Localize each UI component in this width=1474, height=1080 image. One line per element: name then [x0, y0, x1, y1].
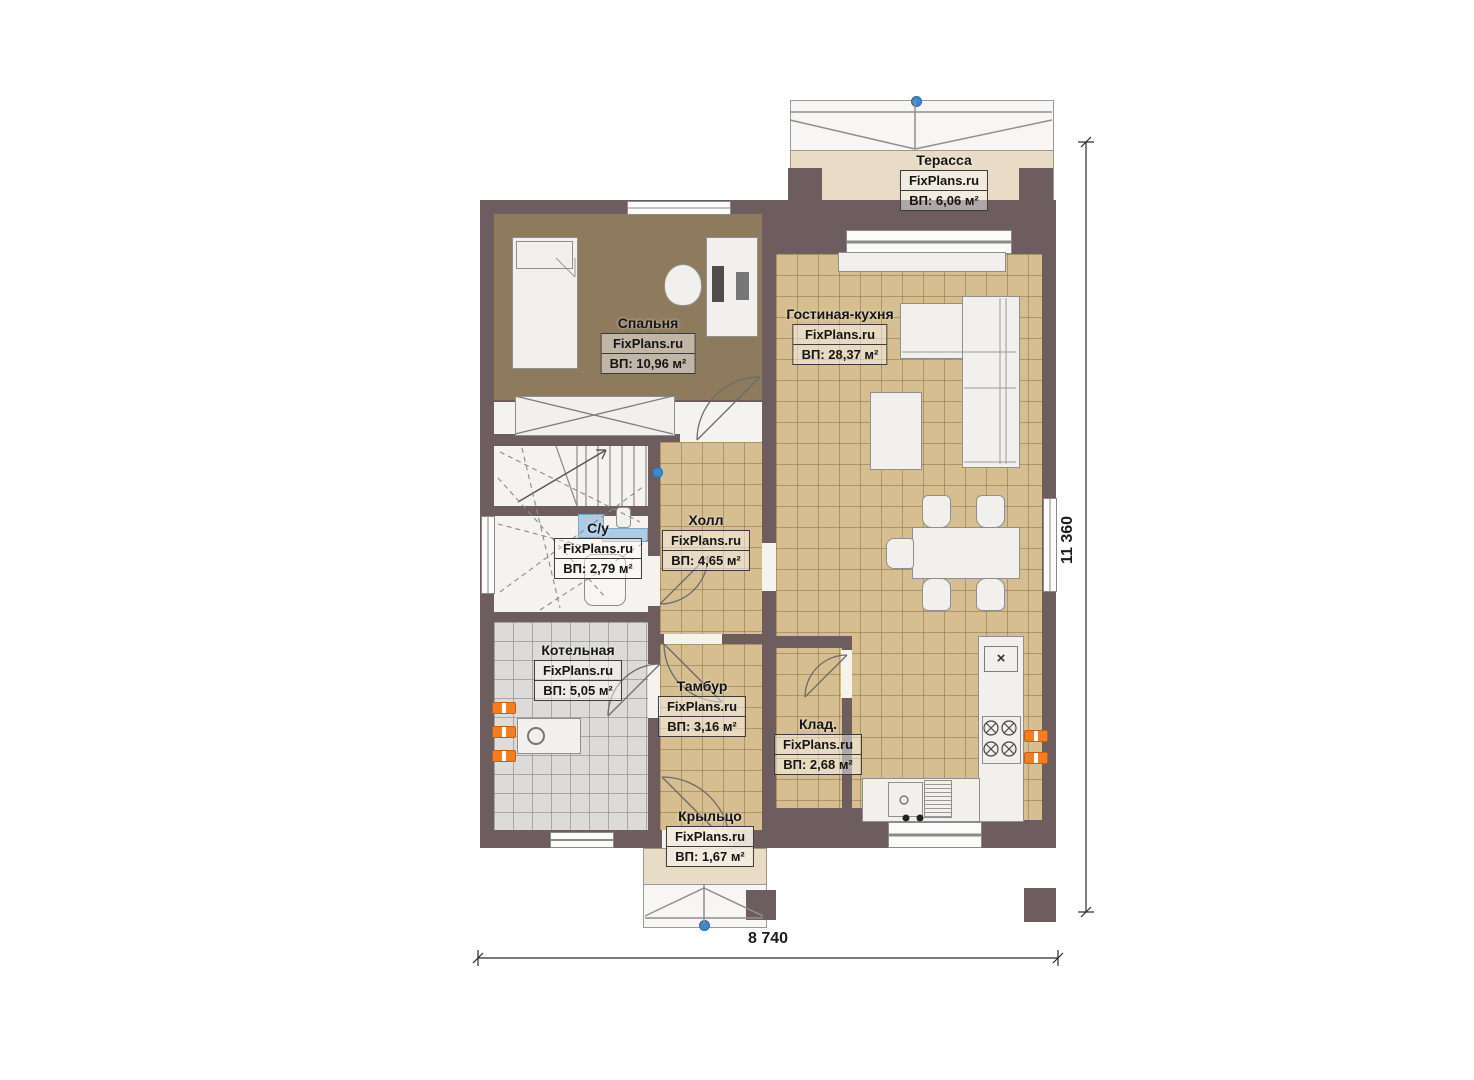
- terrace-column-left: [788, 168, 822, 204]
- room-label-porch: Крыльцо FixPlans.ru ВП: 1,67 м²: [666, 808, 754, 867]
- watermark: FixPlans.ru: [667, 827, 753, 847]
- kitchen-window: [888, 822, 982, 848]
- desk-equipment: [736, 272, 749, 300]
- room-name: Котельная: [534, 642, 622, 658]
- room-info-box: FixPlans.ru ВП: 2,79 м²: [554, 538, 642, 579]
- bathroom-window: [481, 516, 495, 594]
- watermark: FixPlans.ru: [901, 171, 987, 191]
- watermark: FixPlans.ru: [775, 735, 861, 755]
- room-label-bathroom: С/у FixPlans.ru ВП: 2,79 м²: [554, 520, 642, 579]
- room-name: Крыльцо: [666, 808, 754, 824]
- dimension-height-label: 11 360: [1059, 516, 1077, 564]
- room-label-boiler-room: Котельная FixPlans.ru ВП: 5,05 м²: [534, 642, 622, 701]
- radiator: [1024, 730, 1048, 742]
- coffee-table: [870, 392, 922, 470]
- room-info-box: FixPlans.ru ВП: 3,16 м²: [658, 696, 746, 737]
- watermark: FixPlans.ru: [555, 539, 641, 559]
- radiator: [492, 726, 516, 738]
- room-area: ВП: 10,96 м²: [602, 354, 695, 373]
- watermark: FixPlans.ru: [663, 531, 749, 551]
- room-info-box: FixPlans.ru ВП: 1,67 м²: [666, 826, 754, 867]
- watermark: FixPlans.ru: [602, 334, 695, 354]
- room-name: Клад.: [774, 716, 862, 732]
- vestibule-door-opening: [664, 634, 722, 644]
- storage-door-leaf: [841, 650, 852, 698]
- sink-cross-symbol: ×: [997, 650, 1006, 667]
- room-name: Терасса: [900, 152, 988, 168]
- room-info-box: FixPlans.ru ВП: 2,68 м²: [774, 734, 862, 775]
- corner-column: [1024, 888, 1056, 922]
- living-terrace-window: [846, 230, 1012, 254]
- utility-marker: [911, 96, 922, 107]
- hall-living-opening: [762, 543, 776, 591]
- room-info-box: FixPlans.ru ВП: 4,65 м²: [662, 530, 750, 571]
- radiator: [492, 702, 516, 714]
- room-area: ВП: 3,16 м²: [659, 717, 745, 736]
- dimension-width-label: 8 740: [748, 930, 788, 948]
- room-label-storage: Клад. FixPlans.ru ВП: 2,68 м²: [774, 716, 862, 775]
- stove: [982, 716, 1021, 764]
- room-area: ВП: 5,05 м²: [535, 681, 621, 700]
- dining-chair: [976, 495, 1005, 528]
- stairs-floor: [494, 446, 648, 506]
- bedroom-doorway-floor: [680, 402, 762, 442]
- floor-plan: ×: [0, 0, 1474, 1080]
- room-name: Тамбур: [658, 678, 746, 694]
- watermark: FixPlans.ru: [794, 325, 887, 345]
- dining-chair: [976, 578, 1005, 611]
- dining-chair: [922, 578, 951, 611]
- room-info-box: FixPlans.ru ВП: 10,96 м²: [601, 333, 696, 374]
- bedroom-window: [627, 201, 731, 215]
- room-area: ВП: 4,65 м²: [663, 551, 749, 570]
- room-name: Спальня: [601, 315, 696, 331]
- dining-chair: [922, 495, 951, 528]
- room-name: Гостиная-кухня: [786, 306, 893, 322]
- boiler-window: [550, 832, 614, 848]
- storage-wall-top: [776, 636, 852, 648]
- room-area: ВП: 2,68 м²: [775, 755, 861, 774]
- bed-pillow: [516, 241, 573, 269]
- room-area: ВП: 1,67 м²: [667, 847, 753, 866]
- porch-column: [746, 890, 776, 920]
- kitchen-sink-mark: ×: [984, 646, 1018, 672]
- sofa-right-section: [962, 296, 1020, 468]
- room-info-box: FixPlans.ru ВП: 28,37 м²: [793, 324, 888, 365]
- room-name: С/у: [554, 520, 642, 536]
- monitor: [712, 266, 724, 302]
- dining-window: [1043, 498, 1057, 592]
- utility-marker: [699, 920, 710, 931]
- radiator: [492, 750, 516, 762]
- room-area: ВП: 28,37 м²: [794, 345, 887, 364]
- utility-marker: [652, 467, 663, 478]
- watermark: FixPlans.ru: [535, 661, 621, 681]
- boiler-unit: [527, 727, 545, 745]
- tv-console: [838, 252, 1006, 272]
- room-info-box: FixPlans.ru ВП: 6,06 м²: [900, 170, 988, 211]
- storage-wall-bottom: [776, 808, 862, 822]
- room-label-living-kitchen: Гостиная-кухня FixPlans.ru ВП: 28,37 м²: [786, 306, 893, 365]
- vestibule-floor: [660, 644, 762, 830]
- room-label-bedroom: Спальня FixPlans.ru ВП: 10,96 м²: [601, 315, 696, 374]
- room-area: ВП: 6,06 м²: [901, 191, 987, 210]
- room-info-box: FixPlans.ru ВП: 5,05 м²: [534, 660, 622, 701]
- radiator: [1024, 752, 1048, 764]
- room-label-hall: Холл FixPlans.ru ВП: 4,65 м²: [662, 512, 750, 571]
- room-label-vestibule: Тамбур FixPlans.ru ВП: 3,16 м²: [658, 678, 746, 737]
- room-label-terrace: Терасса FixPlans.ru ВП: 6,06 м²: [900, 152, 988, 211]
- terrace-column-right: [1019, 168, 1053, 204]
- terrace-roof-overhang: [790, 100, 1054, 152]
- dish-drainer: [924, 780, 952, 818]
- wardrobe: [515, 396, 675, 436]
- kitchen-sink: [888, 782, 923, 817]
- room-name: Холл: [662, 512, 750, 528]
- desk-chair: [664, 264, 702, 306]
- watermark: FixPlans.ru: [659, 697, 745, 717]
- dining-chair-head: [886, 538, 914, 569]
- dining-table: [912, 527, 1020, 579]
- bathroom-door-opening: [648, 556, 660, 606]
- room-area: ВП: 2,79 м²: [555, 559, 641, 578]
